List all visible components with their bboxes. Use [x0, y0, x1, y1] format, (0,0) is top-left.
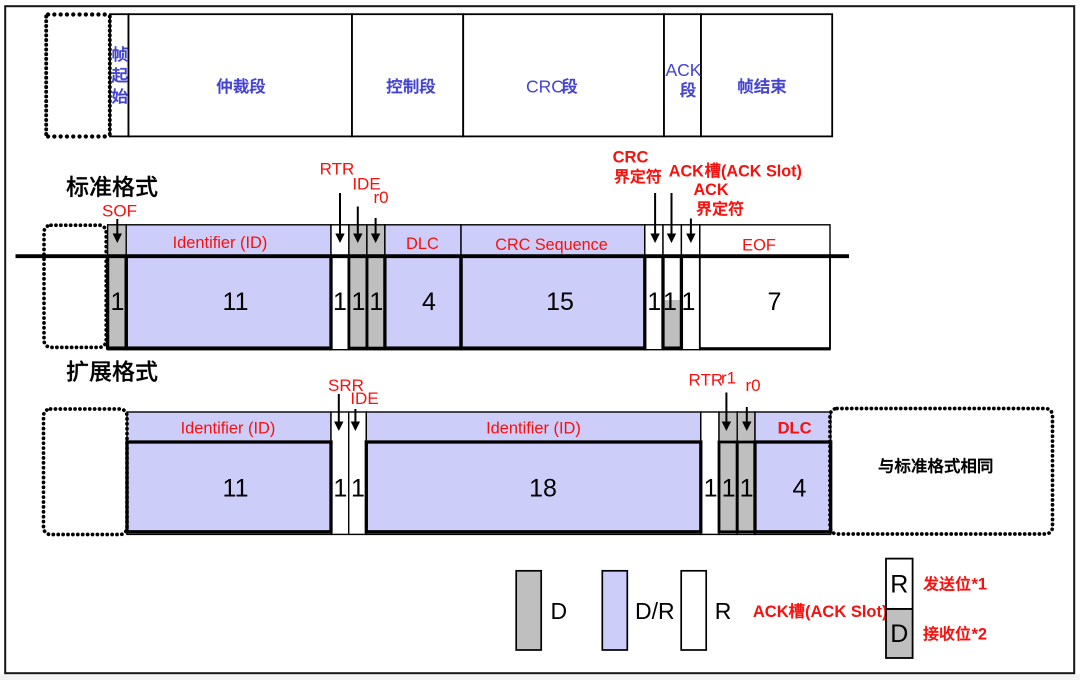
- svg-text:DLC: DLC: [778, 420, 812, 438]
- svg-text:1: 1: [740, 475, 754, 503]
- svg-text:r1: r1: [721, 368, 736, 387]
- svg-text:CRC Sequence: CRC Sequence: [495, 236, 607, 254]
- svg-text:1: 1: [682, 288, 696, 316]
- svg-text:CRC: CRC: [613, 148, 649, 166]
- svg-text:4: 4: [422, 288, 436, 316]
- svg-text:ACK: ACK: [669, 163, 704, 181]
- svg-text:IDE: IDE: [350, 389, 378, 408]
- svg-text:1: 1: [351, 288, 365, 316]
- svg-text:DLC: DLC: [406, 235, 439, 253]
- svg-text:1: 1: [663, 288, 677, 316]
- svg-text:r0: r0: [373, 188, 388, 207]
- svg-text:4: 4: [793, 475, 807, 503]
- svg-text:1: 1: [333, 288, 347, 316]
- svg-text:ACK: ACK: [753, 603, 789, 621]
- svg-text:11: 11: [223, 288, 249, 316]
- svg-text:(ACK Slot): (ACK Slot): [721, 163, 802, 181]
- svg-text:RTR: RTR: [688, 371, 723, 390]
- svg-text:1: 1: [704, 475, 718, 503]
- svg-text:ACK: ACK: [693, 181, 728, 199]
- svg-text:r0: r0: [745, 376, 760, 395]
- svg-text:CRC: CRC: [526, 76, 564, 96]
- svg-text:15: 15: [546, 288, 574, 316]
- svg-text:Identifier (ID): Identifier (ID): [486, 420, 581, 438]
- svg-text:18: 18: [529, 475, 557, 503]
- svg-text:1: 1: [647, 288, 661, 316]
- svg-text:R: R: [890, 571, 908, 599]
- svg-text:SOF: SOF: [102, 202, 137, 221]
- svg-text:1: 1: [333, 475, 347, 503]
- svg-text:(ACK Slot): (ACK Slot): [805, 603, 887, 621]
- svg-text:*1: *1: [972, 576, 988, 594]
- svg-text:RTR: RTR: [320, 160, 355, 179]
- svg-text:1: 1: [722, 475, 736, 503]
- svg-text:*2: *2: [972, 626, 988, 644]
- svg-text:1: 1: [369, 288, 383, 316]
- svg-text:EOF: EOF: [742, 237, 776, 255]
- svg-text:7: 7: [768, 288, 782, 316]
- svg-text:D: D: [890, 620, 908, 648]
- svg-text:1: 1: [351, 475, 365, 503]
- svg-text:Identifier (ID): Identifier (ID): [173, 234, 268, 252]
- svg-text:Identifier (ID): Identifier (ID): [181, 420, 276, 438]
- svg-text:ACK: ACK: [666, 60, 702, 80]
- svg-text:D: D: [551, 598, 568, 624]
- svg-text:1: 1: [111, 288, 125, 316]
- svg-text:D/R: D/R: [635, 598, 675, 624]
- svg-text:11: 11: [223, 475, 249, 503]
- svg-text:R: R: [715, 598, 732, 624]
